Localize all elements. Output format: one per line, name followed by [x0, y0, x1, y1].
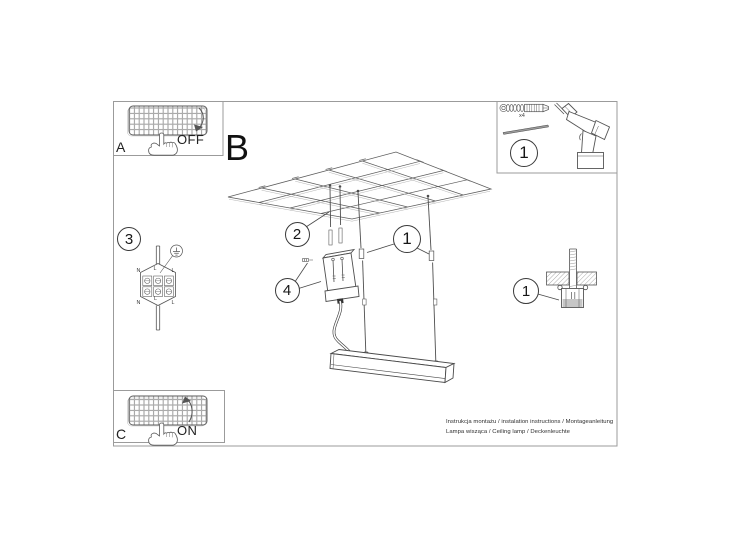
off-label: OFF — [177, 132, 204, 147]
ceiling-slab — [547, 272, 570, 285]
pressing-hand-icon — [149, 133, 178, 155]
ceiling-grid — [228, 152, 491, 221]
lamp-cable — [156, 306, 159, 331]
callout-wire-lock: 1 — [393, 225, 421, 253]
wall-plug-icon — [500, 104, 549, 111]
power-cable — [334, 301, 352, 355]
canopy — [303, 250, 360, 304]
line-art — [0, 0, 732, 550]
cross-tee-joints — [259, 159, 471, 188]
frame — [114, 102, 618, 447]
wire-gripper — [429, 251, 434, 261]
canopy-screw-icon — [303, 259, 314, 262]
footer-product-line: Lampa wisząca / Ceiling lamp / Deckenleu… — [446, 429, 570, 435]
callout-tools: 1 — [510, 139, 538, 167]
step-b-label: B — [225, 127, 249, 169]
on-label: ON — [177, 423, 197, 438]
wiring-diagram — [141, 245, 183, 330]
drill-bit-icon — [503, 125, 549, 134]
callout-anchor: 1 — [513, 278, 539, 304]
ground-symbol-icon — [171, 245, 183, 257]
quantity-label: x4 — [519, 113, 525, 119]
wiring-n-bottom: N — [137, 300, 141, 306]
drill-icon — [555, 103, 610, 169]
wiring-l-mid-bottom: L — [154, 296, 157, 302]
wiring-l-mid-top: L — [154, 266, 157, 272]
wire-gripper — [359, 249, 364, 259]
callout-wiring: 3 — [117, 227, 141, 251]
switch-panel — [129, 396, 207, 425]
instruction-sheet: A B C OFF ON x4 1 2 1 4 3 1 N L L N L L … — [0, 0, 732, 550]
callout-hangers: 2 — [285, 222, 310, 247]
step-c-label: C — [116, 426, 126, 442]
switch-panel — [129, 106, 207, 135]
wiring-l-top: L — [172, 268, 175, 274]
wiring-l-bottom: L — [172, 300, 175, 306]
mains-cable — [156, 246, 159, 264]
footer-title-line: Instrukcja montażu / instalation instruc… — [446, 419, 613, 425]
pressing-hand-icon — [149, 423, 178, 445]
ceiling-slab — [577, 272, 597, 285]
switch-off-illustration — [128, 106, 208, 155]
callout-canopy: 4 — [275, 278, 300, 303]
wiring-n-top: N — [137, 268, 141, 274]
step-a-label: A — [116, 139, 125, 155]
